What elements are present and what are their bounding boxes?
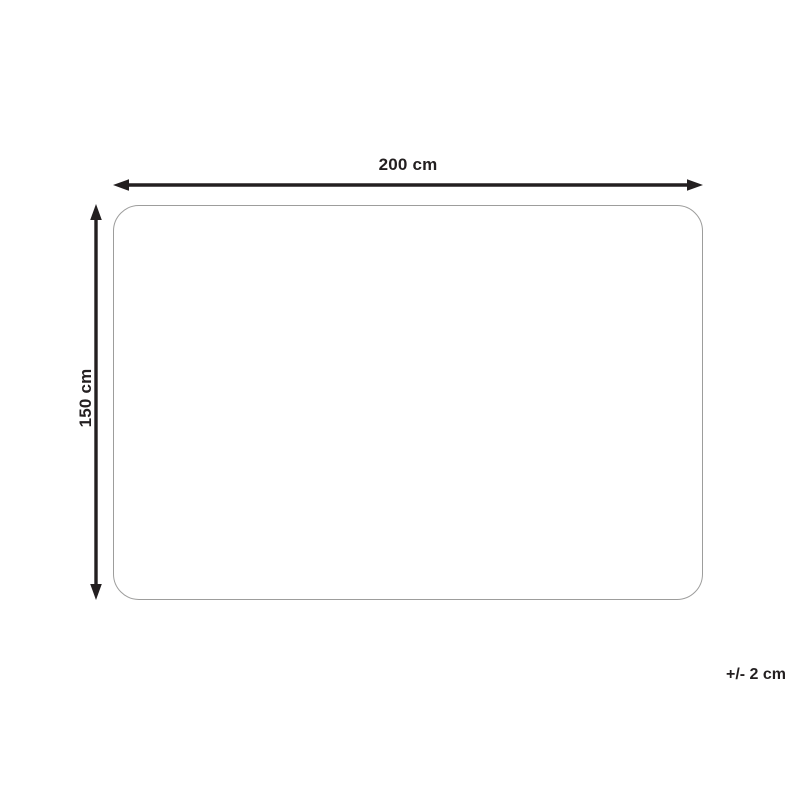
product-outline xyxy=(113,205,703,600)
width-dimension-label: 200 cm xyxy=(113,155,703,175)
horizontal-double-arrow-icon xyxy=(113,177,703,193)
height-dimension-label: 150 cm xyxy=(76,369,96,428)
tolerance-label: +/- 2 cm xyxy=(726,666,786,684)
dimension-diagram: 200 cm 150 cm +/- 2 cm xyxy=(0,0,800,800)
